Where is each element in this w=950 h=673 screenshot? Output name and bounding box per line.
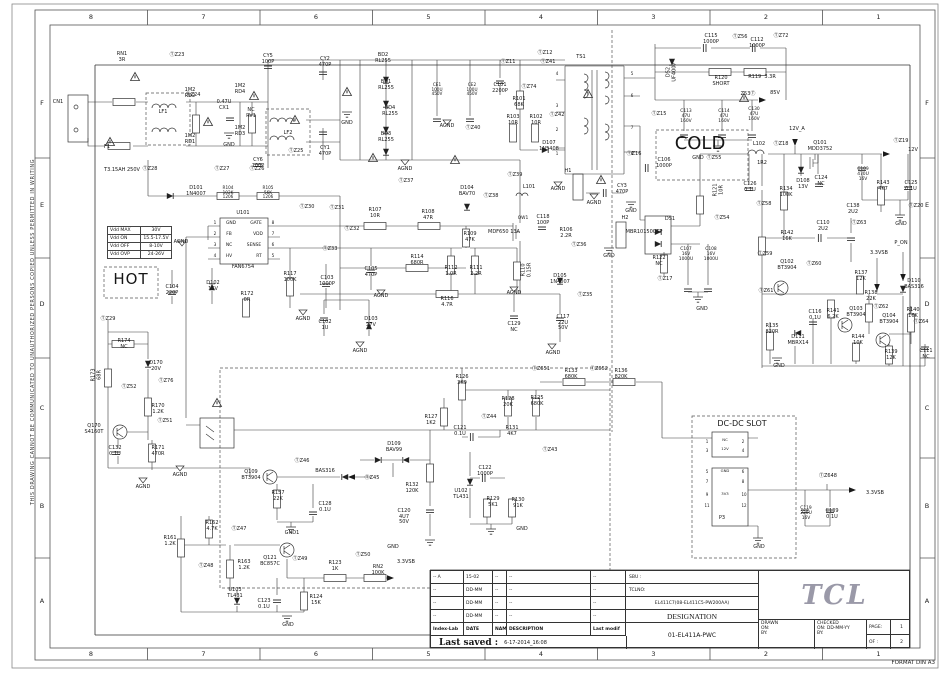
model-number: EL411C7(08-EL411C5-PW200AA) xyxy=(626,597,758,610)
component-label: 7 xyxy=(706,480,709,484)
testpoint-label: ⓉZ18 xyxy=(774,142,789,148)
testpoint-label: ⓉZ76 xyxy=(159,379,174,385)
component-label: D111 MBRX14 xyxy=(787,335,808,346)
component-label: RT xyxy=(256,255,261,260)
zone-label: E xyxy=(40,201,44,209)
testpoint-label: ⓉZ64 xyxy=(914,320,929,326)
component-label: 5 xyxy=(631,72,634,76)
component-label: GND xyxy=(282,623,293,629)
component-label: GND xyxy=(692,156,703,162)
testpoint-label: ⓉZ41 xyxy=(541,60,556,66)
revision-cell: -- xyxy=(493,610,507,623)
document-number: 01-EL411A-PWC xyxy=(626,623,758,648)
testpoint-label: ⓉZ35 xyxy=(578,293,593,299)
component-label: 3 xyxy=(706,449,709,453)
testpoint-label: ⓉZ38 xyxy=(484,194,499,200)
component-label: T3.15AH 250V xyxy=(104,168,140,174)
component-label: C105 470P xyxy=(364,267,377,278)
component-label: D101 1N4007 xyxy=(186,186,206,197)
vdd-param: Vdd ON xyxy=(108,235,141,243)
component-label: R135 820R xyxy=(765,324,778,335)
component-label: AGND xyxy=(353,349,368,355)
component-label: C128 0.1U xyxy=(318,502,331,513)
component-label: Q103 BT3904 xyxy=(846,307,865,318)
component-label: 1R2 xyxy=(757,161,767,167)
drawn-by: BY: xyxy=(761,631,812,636)
zone-label: 6 xyxy=(314,13,318,21)
revision-row: --DD-MM------ xyxy=(431,597,626,610)
testpoint-label: ⓉZ47 xyxy=(232,527,247,533)
testpoint-label: ⓉZ15 xyxy=(652,112,667,118)
component-label: C111 NC xyxy=(919,349,932,360)
zone-label: 4 xyxy=(539,13,543,21)
checked-cell: CHECKED ON: DD-MM-YY BY: xyxy=(815,620,867,649)
component-label: R123 1K xyxy=(328,561,341,572)
zone-label: B xyxy=(925,502,929,510)
component-label: TS1 xyxy=(576,55,585,61)
last-saved: Last saved : 6-17-2014_16:08 xyxy=(431,636,627,649)
component-label: 3 xyxy=(214,243,217,248)
sbu-field: SBU : xyxy=(626,571,758,584)
component-label: AGND xyxy=(374,294,389,300)
title-block: -- A15-02--------DD-MM--------DD-MM-----… xyxy=(430,570,910,648)
component-label: R137 12K xyxy=(854,271,867,282)
component-label: C132 0.1U xyxy=(108,446,121,457)
component-label: R140 16K xyxy=(906,308,919,319)
revision-row: -- A15-02------ xyxy=(431,571,626,584)
component-label: R141 6.2K xyxy=(826,309,839,320)
component-label: GND xyxy=(895,222,906,228)
checked-by: BY: xyxy=(817,631,864,636)
component-label: R171 470R xyxy=(151,446,164,457)
component-label: NC xyxy=(226,244,232,249)
component-label: CY1 470P xyxy=(319,146,332,157)
component-label: R132 120K xyxy=(405,483,418,494)
component-label: Q104 BT3904 xyxy=(879,314,898,325)
tclno-field: TCLNO: xyxy=(626,584,758,597)
component-label: 5 xyxy=(706,470,709,474)
component-label: C119 220U 16V xyxy=(800,507,812,522)
component-label: SENSE xyxy=(247,244,261,249)
testpoint-label: ⓉZ74 xyxy=(522,85,537,91)
revision-cell: -- xyxy=(591,597,626,610)
component-label: CN1 xyxy=(53,100,63,106)
component-label: R174 NC xyxy=(117,339,130,350)
component-label: R124 15K xyxy=(309,595,322,606)
component-label: 1 xyxy=(556,152,559,156)
component-label: C104 220P xyxy=(165,285,178,296)
zone-label: 1 xyxy=(876,13,880,21)
component-label: R139 12K xyxy=(884,350,897,361)
component-label: Q102 BT3904 xyxy=(777,260,796,271)
zone-label: 2 xyxy=(764,650,768,658)
component-label: R120 SHORT xyxy=(712,76,729,87)
component-label: C103 1000P xyxy=(319,276,335,287)
revision-table: -- A15-02--------DD-MM--------DD-MM-----… xyxy=(431,571,626,623)
component-label: Z53Ⓣ xyxy=(741,92,756,98)
testpoint-label: ⓉZ51 xyxy=(158,419,173,425)
component-label: 3.3VSB xyxy=(870,251,888,257)
vdd-value: 30V xyxy=(141,227,172,235)
testpoint-label: ⓉZ20 xyxy=(909,204,924,210)
page-number: 1 xyxy=(891,620,910,635)
testpoint-label: ⓉZ63 xyxy=(852,221,867,227)
title-block-center: SBU : TCLNO: EL411C7(08-EL411C5-PW200AA)… xyxy=(626,571,759,649)
zone-label: E xyxy=(925,201,929,209)
component-label: 4 xyxy=(742,449,745,453)
component-label: R157 22K xyxy=(271,491,284,502)
vdd-value: 8-10V xyxy=(141,243,172,251)
vdd-table-row: Vdd OFF8-10V xyxy=(108,243,172,251)
component-label: GATE xyxy=(250,222,262,227)
component-label: 4 xyxy=(556,72,559,76)
tcl-logo: TCL xyxy=(759,571,910,620)
component-label: R173 68R xyxy=(91,368,102,381)
component-label: AGND xyxy=(440,124,455,130)
revision-cell: -- xyxy=(591,584,626,597)
revision-cell: -- xyxy=(507,610,591,623)
revision-cell: NAME xyxy=(493,623,507,636)
testpoint-label: ⓉZ55 xyxy=(707,156,722,162)
zone-label: A xyxy=(40,597,44,605)
component-label: 0.47U CX1 xyxy=(217,100,232,111)
component-label: 12V xyxy=(908,148,918,154)
component-label: GND xyxy=(341,121,352,127)
component-label: 9 xyxy=(706,493,709,497)
component-label: AGND xyxy=(398,167,413,173)
zone-label: 8 xyxy=(89,13,93,21)
zone-label: 8 xyxy=(89,650,93,658)
component-label: 1M2 RD3 xyxy=(235,126,246,137)
warning-icons xyxy=(106,73,749,407)
testpoint-label: ⓉZ27 xyxy=(215,167,230,173)
component-label: 12V xyxy=(721,447,728,451)
revision-cell: -- xyxy=(431,584,464,597)
revision-cell: -- xyxy=(507,597,591,610)
revision-header-row: Index-LabDATENAMEDESCRIPTIONLast modif xyxy=(431,623,626,636)
component-label: DC-DC SLOT xyxy=(717,420,766,429)
page-label: PAGE: xyxy=(867,620,891,635)
revision-cell: -- xyxy=(431,610,464,623)
component-label: D110 BAS316 xyxy=(904,279,924,290)
component-label: GND xyxy=(223,143,234,149)
zone-label: C xyxy=(40,404,45,412)
component-label: 6 xyxy=(631,94,634,98)
component-label: C110 2U2 xyxy=(816,221,829,232)
component-label: GND xyxy=(387,545,398,551)
component-label: AGND xyxy=(296,317,311,323)
component-label: RN1 3R xyxy=(117,52,127,63)
testpoint-label: ⓉZ50 xyxy=(356,553,371,559)
component-label: 8 xyxy=(272,221,275,226)
last-saved-value: 6-17-2014_16:08 xyxy=(504,640,547,646)
component-label: BD2 RL255 xyxy=(375,53,391,64)
component-label: D104 BAV70 xyxy=(459,186,475,197)
component-label: 12 xyxy=(741,504,746,508)
signature-row: DRAWN ON: BY: CHECKED ON: DD-MM-YY BY: P… xyxy=(759,620,910,649)
cn1-connector xyxy=(68,95,88,142)
component-label: R134 100K xyxy=(779,187,792,198)
component-label: R119 3.3R xyxy=(748,75,776,81)
component-label: 3V3 xyxy=(721,492,728,496)
component-label: C121 0.1U xyxy=(453,426,466,437)
component-label: FB xyxy=(226,233,232,238)
component-label: R112 1.0R xyxy=(444,266,457,277)
component-label: C115 1000P xyxy=(703,34,719,45)
revision-row: --DD-MM------ xyxy=(431,584,626,597)
component-label: R125 680K xyxy=(530,396,543,407)
component-label: R121 10R xyxy=(713,183,724,196)
revision-cell: Index-Lab xyxy=(431,623,464,636)
testpoint-label: ⓉZ54 xyxy=(715,216,730,222)
component-label: AGND xyxy=(174,240,189,246)
component-label: C118 100P xyxy=(536,215,549,226)
revision-cell: -- xyxy=(431,597,464,610)
component-label: C114 47U 160V xyxy=(718,110,729,125)
component-label: 3.3VSB xyxy=(397,560,415,566)
component-label: R131 4K7 xyxy=(505,426,518,437)
component-label: BAS316 xyxy=(315,469,335,475)
component-label: MBR10150CTP xyxy=(626,230,663,236)
component-label: AGND xyxy=(587,201,602,207)
component-label: Q109 BT3904 xyxy=(241,470,260,481)
component-label: R172 0R xyxy=(240,292,253,303)
component-label: GND1 xyxy=(285,531,300,537)
zone-label: 3 xyxy=(651,13,655,21)
revision-cell: DESCRIPTION xyxy=(507,623,591,636)
component-label: C113 47U 160V xyxy=(680,110,691,125)
vdd-table-row: Vdd ON15.5-17.5V xyxy=(108,235,172,243)
component-label: 7 xyxy=(631,126,634,130)
component-label: GND xyxy=(226,222,236,227)
component-label: R163 1.2K xyxy=(237,560,250,571)
testpoint-label: ⓉZ16 xyxy=(627,152,642,158)
component-label: R133 680K xyxy=(564,369,577,380)
component-symbols xyxy=(68,72,764,526)
testpoint-label: ⓉZ56 xyxy=(733,35,748,41)
component-label: H2 xyxy=(622,216,629,222)
component-label: U101 xyxy=(236,211,249,217)
vdd-table-row: Vdd MAX30V xyxy=(108,227,172,235)
component-label: R101 68K xyxy=(512,97,525,108)
component-label: 6 xyxy=(272,243,275,248)
testpoint-label: ⓉZ11 xyxy=(501,60,516,66)
revision-row: --DD-MM------ xyxy=(431,610,626,623)
testpoint-label: ⓉZ43 xyxy=(543,448,558,454)
schematic-sheet: THIS DRAWING CANNOT BE COMMUNICATED TO U… xyxy=(0,0,950,673)
component-label: R161 1.2K xyxy=(163,536,176,547)
component-label: COLD xyxy=(675,134,726,154)
format-label: FORMAT DIN A3 xyxy=(845,660,935,666)
testpoint-label: ⓉZ24 xyxy=(186,93,201,99)
testpoint-label: ⓉZ72 xyxy=(774,34,789,40)
testpoint-label: ⓉZ19 xyxy=(894,139,909,145)
component-label: D52 UF4007 xyxy=(666,62,677,81)
component-label: 10 xyxy=(741,493,746,497)
revision-cell: -- xyxy=(493,571,507,584)
testpoint-label: ⓉZ40 xyxy=(466,126,481,132)
component-label: R144 10K xyxy=(851,335,864,346)
component-label: C130 47U 160V xyxy=(748,108,759,123)
component-label: 3 xyxy=(556,104,559,108)
designation-label: DESIGNATION xyxy=(626,610,758,623)
component-label: R138 22K xyxy=(864,291,877,302)
testpoint-label: ⓉZ45 xyxy=(365,476,380,482)
component-label: R127 1K2 xyxy=(424,415,437,426)
component-label: FAN6754 xyxy=(232,265,254,271)
component-label: C116 0.1U xyxy=(808,310,821,321)
of-label: OF : xyxy=(867,635,891,649)
component-label: NC xyxy=(722,438,728,442)
component-label: AGND xyxy=(546,351,561,357)
component-label: C117 22U 50V xyxy=(556,315,569,332)
zone-label: 4 xyxy=(539,650,543,658)
component-label: R102 10R xyxy=(529,115,542,126)
component-label: Q101 MDD3752 xyxy=(808,141,833,152)
zone-label: D xyxy=(39,300,44,308)
component-label: 8 xyxy=(742,480,745,484)
vdd-table-row: Vdd OVP24-26V xyxy=(108,251,172,259)
component-label: CY2 470P xyxy=(319,57,332,68)
zone-label: 2 xyxy=(764,13,768,21)
component-label: RN2 100K xyxy=(372,565,385,576)
component-label: 1 xyxy=(214,221,217,226)
testpoint-label: ⓉZ26 xyxy=(250,167,265,173)
component-label: R122 NC xyxy=(652,256,665,267)
component-label: R170 1.2K xyxy=(151,404,164,415)
testpoint-label: ⓉZ60 xyxy=(807,262,822,268)
component-label: C139 0.1U xyxy=(825,509,838,520)
component-label: R105 56K 1206 xyxy=(263,186,274,200)
component-label: GND xyxy=(773,364,784,370)
vdd-value: 15.5-17.5V xyxy=(141,235,172,243)
component-label: P3 xyxy=(719,516,725,522)
component-label: 2 xyxy=(214,232,217,237)
component-label: MDF650 13A xyxy=(488,230,520,236)
component-label: 3.3VSB xyxy=(866,491,884,497)
component-label: C123 0.1U xyxy=(257,599,270,610)
revision-cell: -- xyxy=(591,571,626,584)
component-label: R109 47K xyxy=(463,232,476,243)
testpoint-label: ⓉZ52 xyxy=(122,385,137,391)
zone-label: F xyxy=(925,99,929,107)
component-label: OW1 xyxy=(518,217,529,222)
component-label: R107 10R xyxy=(368,208,381,219)
component-label: 85V xyxy=(770,91,780,97)
component-label: AGND xyxy=(136,485,151,491)
testpoint-label: ⓉZ59 xyxy=(758,252,773,258)
component-label: HOT xyxy=(113,271,148,288)
component-label: 1 xyxy=(706,440,709,444)
h2-connector xyxy=(616,222,626,248)
component-label: NC RV1 xyxy=(246,108,256,119)
component-label: 5 xyxy=(272,254,275,259)
component-label: R143 4K7 xyxy=(876,181,889,192)
component-label: C138 2U2 xyxy=(846,204,859,215)
drawn-cell: DRAWN ON: BY: xyxy=(759,620,815,649)
vdd-param: Vdd MAX xyxy=(108,227,141,235)
component-label: GND xyxy=(753,545,764,551)
component-label: R136 820K xyxy=(614,369,627,380)
testpoint-label: ⓉZ652 xyxy=(590,367,608,373)
component-label: 4 xyxy=(214,254,217,259)
testpoint-label: ⓉZ61 xyxy=(759,289,774,295)
revision-cell: -- xyxy=(493,584,507,597)
page-cell: PAGE: 1 OF : 2 xyxy=(867,620,910,649)
title-block-right: TCL DRAWN ON: BY: CHECKED ON: DD-MM-YY B… xyxy=(759,571,910,649)
component-label: D170 20V xyxy=(149,361,162,372)
component-label: C125 0.1U xyxy=(904,181,917,192)
testpoint-label: ⓉZ42 xyxy=(550,113,565,119)
last-saved-label: Last saved : xyxy=(439,638,498,648)
testpoint-label: ⓉZ31 xyxy=(330,206,345,212)
component-label: R126 3K9 xyxy=(455,375,468,386)
component-label: AGND xyxy=(173,473,188,479)
component-label: R116 4.7R xyxy=(440,297,453,308)
component-label: R103 10R xyxy=(506,115,519,126)
component-label: GND xyxy=(516,527,527,533)
component-label: D105 1N4007 xyxy=(550,274,570,285)
component-label: R106 2.2R xyxy=(559,228,572,239)
h1-connector xyxy=(573,174,583,200)
component-label: R110 0.15R xyxy=(521,263,532,278)
testpoint-label: ⓉZ33 xyxy=(323,247,338,253)
component-label: GND xyxy=(625,209,636,215)
zone-label: 5 xyxy=(426,13,430,21)
of-number: 2 xyxy=(891,635,910,649)
component-label: C109 470U 16V xyxy=(857,168,869,183)
revision-cell: DD-MM xyxy=(464,597,493,610)
revision-cell: -- A xyxy=(431,571,464,584)
testpoint-label: ⓉZ648 xyxy=(819,474,837,480)
revision-cell: 15-02 xyxy=(464,571,493,584)
testpoint-label: ⓉZ25 xyxy=(289,149,304,155)
component-label: DS1 xyxy=(665,217,675,223)
component-label: C106 1000P xyxy=(656,158,672,169)
component-label: R104 102K 1206 xyxy=(223,186,234,200)
optocoupler-body xyxy=(200,418,234,448)
zone-label: C xyxy=(925,404,930,412)
component-label: H1 xyxy=(565,169,572,175)
zone-label: 3 xyxy=(651,650,655,658)
component-label: L101 xyxy=(523,185,535,191)
component-label: R108 47R xyxy=(421,210,434,221)
component-label: C120 4U7 50V xyxy=(397,509,410,526)
component-label: C112 1000P xyxy=(749,38,765,49)
component-label: 2 xyxy=(556,128,559,132)
component-label: CE2 100U 450V xyxy=(466,83,477,97)
component-label: BD4 RL255 xyxy=(382,106,398,117)
component-label: LF1 xyxy=(159,110,168,116)
net-arrows xyxy=(348,97,906,581)
component-label: C129 NC xyxy=(507,322,520,333)
testpoint-label: ⓉZ39 xyxy=(508,173,523,179)
zone-label: B xyxy=(40,502,44,510)
component-label: D102 16V xyxy=(206,281,219,292)
isolation-boundaries xyxy=(104,30,796,588)
zone-label: F xyxy=(40,99,44,107)
zone-label: 7 xyxy=(201,650,205,658)
component-label: R142 16K xyxy=(780,231,793,242)
component-label: C126 0.1U xyxy=(743,182,756,193)
zone-label: 1 xyxy=(876,650,880,658)
component-label: Q121 BC857C xyxy=(260,556,280,567)
component-label: 6 xyxy=(742,470,745,474)
component-label: GND xyxy=(696,307,707,313)
component-label: GND xyxy=(603,254,614,260)
testpoint-label: ⓉZ49 xyxy=(293,557,308,563)
component-label: AGND xyxy=(507,291,522,297)
